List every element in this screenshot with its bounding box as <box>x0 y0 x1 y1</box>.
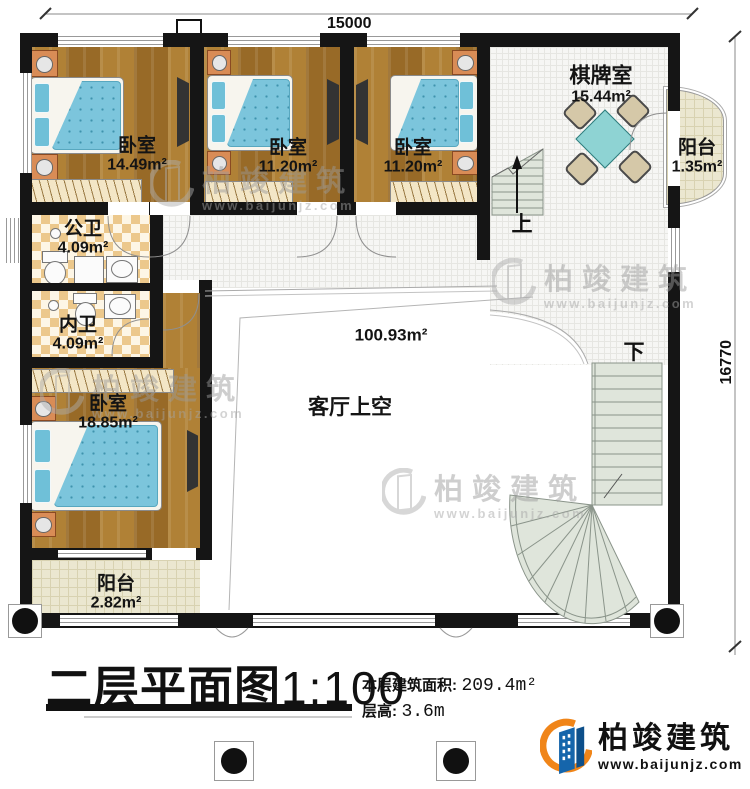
column-symbol <box>436 741 476 781</box>
room-label-bedroom2: 卧室 11.20m² <box>259 137 318 176</box>
room-name: 公卫 <box>58 218 109 239</box>
info-area-label: 本层建筑面积: <box>362 677 457 694</box>
window <box>20 425 32 503</box>
wall <box>20 202 480 215</box>
room-area: 2.82m² <box>91 595 142 613</box>
wall <box>340 47 354 203</box>
nightstand <box>30 50 58 77</box>
tv <box>187 430 198 492</box>
window <box>668 228 680 272</box>
bedroom4-entry-floor <box>163 293 200 368</box>
window <box>58 550 146 558</box>
floor-plan-canvas: 柏竣建筑 www.baijunjz.com 柏竣建筑 www.baijunjz.… <box>0 0 750 789</box>
column-marker <box>8 604 42 638</box>
wardrobe <box>205 181 293 204</box>
info-height-value: 3.6m <box>401 702 444 722</box>
room-area: 100.93m² <box>355 325 428 344</box>
room-name: 内卫 <box>53 314 104 335</box>
dimension-top: 15000 <box>327 15 372 33</box>
door-opening <box>150 202 190 215</box>
door-opening <box>152 548 196 560</box>
room-name: 阳台 <box>91 573 142 594</box>
tv <box>327 79 339 145</box>
dimension-right: 16770 <box>718 340 736 385</box>
wardrobe <box>28 179 142 203</box>
room-area: 11.20m² <box>259 159 318 177</box>
room-name: 卧室 <box>259 137 318 158</box>
door-opening <box>297 202 337 215</box>
nightstand <box>30 396 56 421</box>
room-label-public-bath: 公卫 4.09m² <box>58 218 109 257</box>
company-logo-icon <box>540 716 592 780</box>
room-label-chess: 棋牌室 15.44m² <box>570 64 633 105</box>
vanity-cabinet <box>74 256 104 284</box>
column-symbol <box>214 741 254 781</box>
info-height-line: 层高: 3.6m <box>362 700 445 722</box>
column-marker <box>650 604 684 638</box>
info-area-value: 209.4m² <box>461 676 537 696</box>
wall <box>190 47 204 203</box>
room-name: 卧室 <box>78 393 138 414</box>
sink-basin <box>111 260 133 278</box>
room-area: 1.35m² <box>672 159 723 177</box>
room-area: 18.85m² <box>78 415 138 433</box>
corridor-floor <box>163 215 490 288</box>
ceiling-lamp <box>48 300 59 311</box>
door-opening <box>163 280 199 293</box>
nightstand <box>207 50 231 75</box>
company-name: 柏竣建筑 <box>598 724 743 754</box>
window <box>20 73 32 173</box>
room-name: 阳台 <box>672 137 723 158</box>
window <box>367 33 460 47</box>
wardrobe <box>30 369 174 393</box>
window <box>228 33 320 47</box>
window <box>518 615 630 626</box>
nightstand <box>207 151 231 175</box>
tv <box>177 77 189 147</box>
tv <box>356 79 368 145</box>
window <box>253 615 435 626</box>
info-area-line: 本层建筑面积: 209.4m² <box>362 674 537 696</box>
title-underline-thin <box>84 716 352 718</box>
void-name-label: 客厅上空 <box>308 396 392 420</box>
wall <box>477 47 490 260</box>
wall <box>200 280 212 560</box>
window <box>60 615 178 626</box>
bed <box>30 421 162 511</box>
room-label-bedroom4: 卧室 18.85m² <box>78 393 138 432</box>
window <box>58 33 163 47</box>
window-sill <box>3 218 20 263</box>
wall <box>20 283 163 291</box>
room-name: 卧室 <box>107 135 167 156</box>
wardrobe <box>390 181 478 204</box>
room-area: 4.09m² <box>58 240 109 258</box>
room-area: 11.20m² <box>384 159 443 177</box>
door-opening <box>356 202 396 215</box>
sink-basin <box>109 297 131 315</box>
nightstand <box>452 151 478 175</box>
toilet-bowl <box>44 261 66 285</box>
wall <box>20 357 163 368</box>
room-name: 卧室 <box>384 137 443 158</box>
stairs-up-label: 上 <box>512 208 533 238</box>
nightstand <box>30 512 56 537</box>
room-area: 14.49m² <box>107 157 167 175</box>
room-label-bottom-balcony: 阳台 2.82m² <box>91 573 142 612</box>
stairs-down-label: 下 <box>624 336 645 366</box>
room-area: 4.09m² <box>53 336 104 354</box>
room-area: 15.44m² <box>570 88 633 106</box>
room-name: 客厅上空 <box>308 396 392 420</box>
company-logo: 柏竣建筑 www.baijunjz.com <box>540 716 743 780</box>
door-opening <box>108 202 149 215</box>
company-url: www.baijunjz.com <box>598 756 743 772</box>
info-height-label: 层高: <box>362 703 397 720</box>
nightstand <box>452 50 478 75</box>
void-area-label: 100.93m² <box>355 325 428 344</box>
room-label-bedroom1: 卧室 14.49m² <box>107 135 167 174</box>
title-underline <box>46 704 352 711</box>
nightstand <box>30 154 58 180</box>
room-label-private-bath: 内卫 4.09m² <box>53 314 104 353</box>
room-name: 棋牌室 <box>570 64 633 88</box>
room-label-right-balcony: 阳台 1.35m² <box>672 137 723 176</box>
room-label-bedroom3: 卧室 11.20m² <box>384 137 443 176</box>
